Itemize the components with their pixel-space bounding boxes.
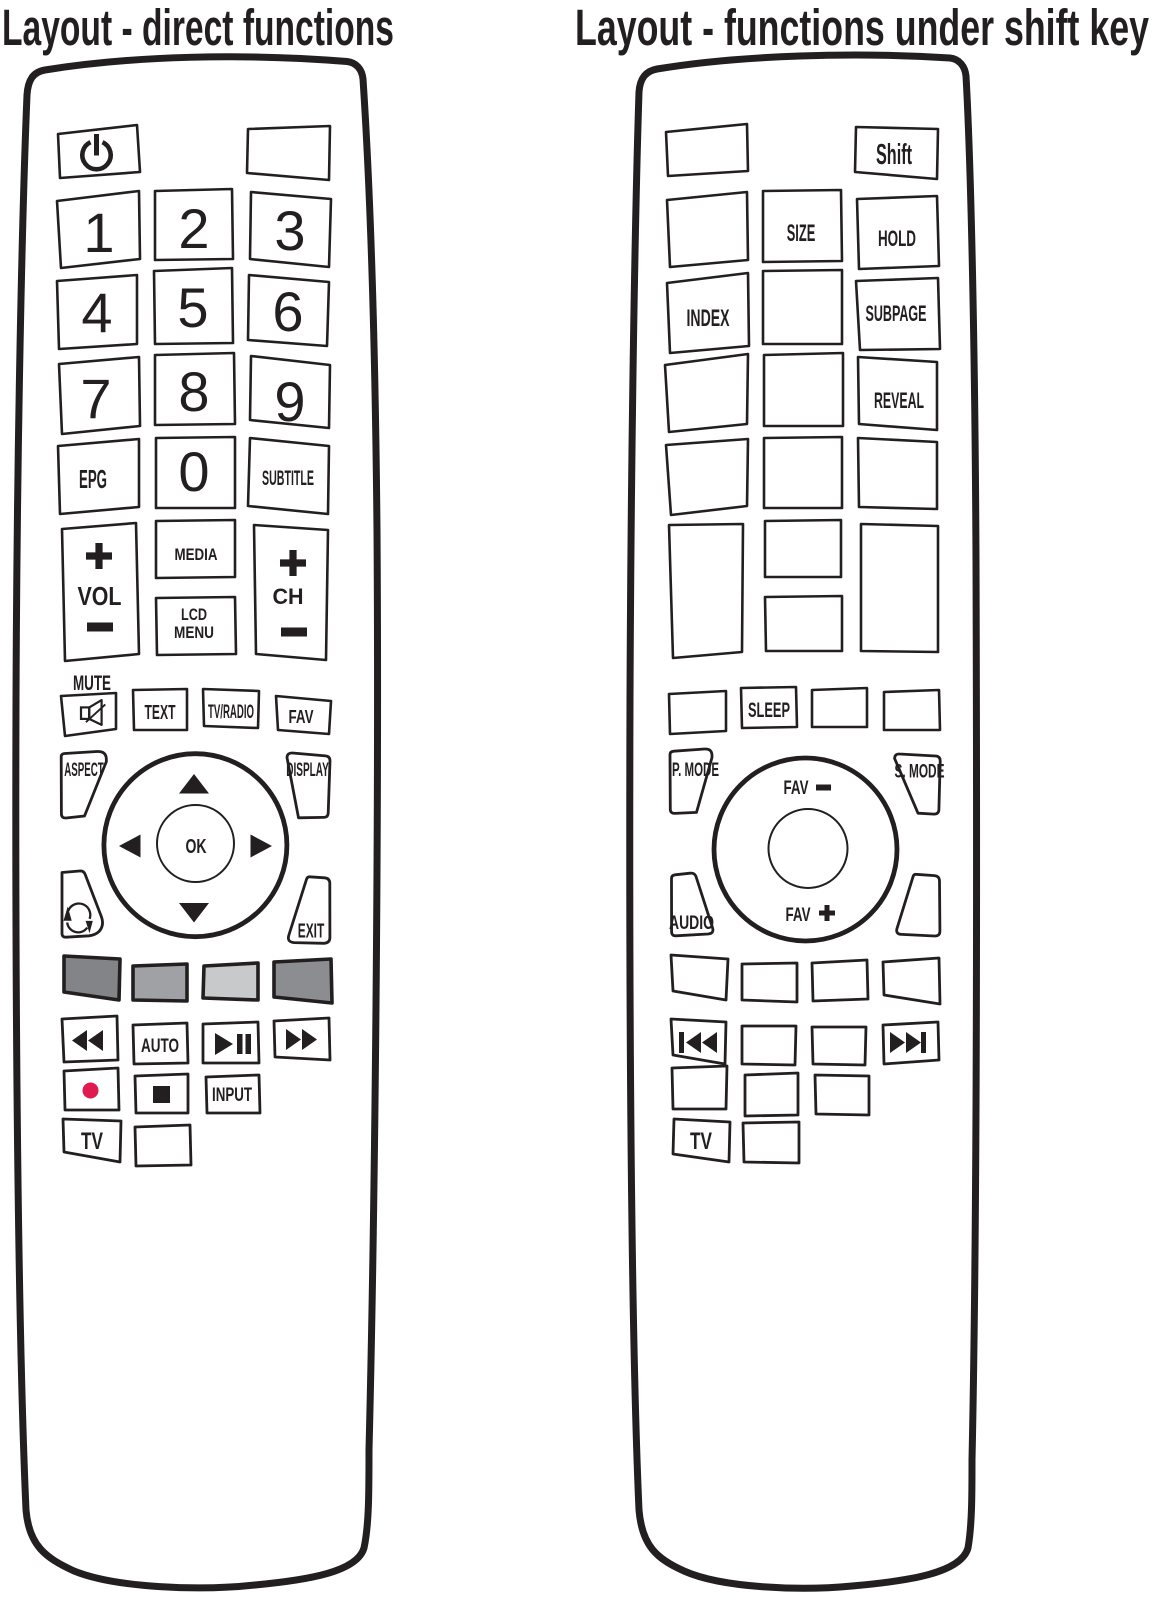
svg-text:AUDIO: AUDIO xyxy=(669,913,714,934)
svg-text:FAV: FAV xyxy=(784,778,809,799)
svg-text:3: 3 xyxy=(274,199,305,262)
svg-text:INPUT: INPUT xyxy=(212,1085,252,1106)
svg-text:MEDIA: MEDIA xyxy=(175,546,218,564)
svg-text:4: 4 xyxy=(81,281,112,344)
svg-text:MUTE: MUTE xyxy=(73,672,111,695)
svg-text:HOLD: HOLD xyxy=(878,226,916,251)
svg-text:Shift: Shift xyxy=(876,139,912,171)
svg-text:1: 1 xyxy=(83,201,114,264)
svg-text:5: 5 xyxy=(177,276,208,339)
svg-text:9: 9 xyxy=(274,370,305,433)
svg-text:SIZE: SIZE xyxy=(787,220,816,247)
svg-text:FAV: FAV xyxy=(289,706,314,727)
svg-text:EPG: EPG xyxy=(79,464,107,494)
svg-text:TV/RADIO: TV/RADIO xyxy=(208,702,254,723)
svg-text:7: 7 xyxy=(80,367,111,430)
svg-text:CH: CH xyxy=(273,584,304,609)
svg-text:SLEEP: SLEEP xyxy=(748,699,790,722)
svg-text:P. MODE: P. MODE xyxy=(672,760,719,781)
svg-text:Layout - direct functions: Layout - direct functions xyxy=(2,0,394,56)
svg-text:VOL: VOL xyxy=(78,581,122,611)
svg-text:2: 2 xyxy=(178,197,209,260)
svg-text:TEXT: TEXT xyxy=(145,701,176,724)
svg-text:TV: TV xyxy=(690,1128,712,1155)
svg-text:AUTO: AUTO xyxy=(141,1036,179,1057)
svg-text:S. MODE: S. MODE xyxy=(895,762,945,783)
svg-text:ASPECT: ASPECT xyxy=(64,760,104,781)
svg-text:EXIT: EXIT xyxy=(298,920,325,943)
svg-text:REVEAL: REVEAL xyxy=(874,388,924,413)
svg-text:MENU: MENU xyxy=(174,623,214,642)
svg-text:FAV: FAV xyxy=(786,905,811,926)
svg-text:8: 8 xyxy=(178,360,209,423)
svg-text:DISPLAY: DISPLAY xyxy=(286,760,329,781)
svg-text:SUBTITLE: SUBTITLE xyxy=(262,467,314,490)
svg-text:6: 6 xyxy=(272,280,303,343)
svg-text:TV: TV xyxy=(81,1128,103,1155)
svg-text:INDEX: INDEX xyxy=(687,305,730,332)
svg-text:LCD: LCD xyxy=(181,605,207,624)
svg-text:0: 0 xyxy=(178,440,209,503)
svg-text:OK: OK xyxy=(186,836,207,858)
svg-text:Layout - functions under shift: Layout - functions under shift key xyxy=(575,0,1149,56)
svg-text:SUBPAGE: SUBPAGE xyxy=(866,301,927,326)
